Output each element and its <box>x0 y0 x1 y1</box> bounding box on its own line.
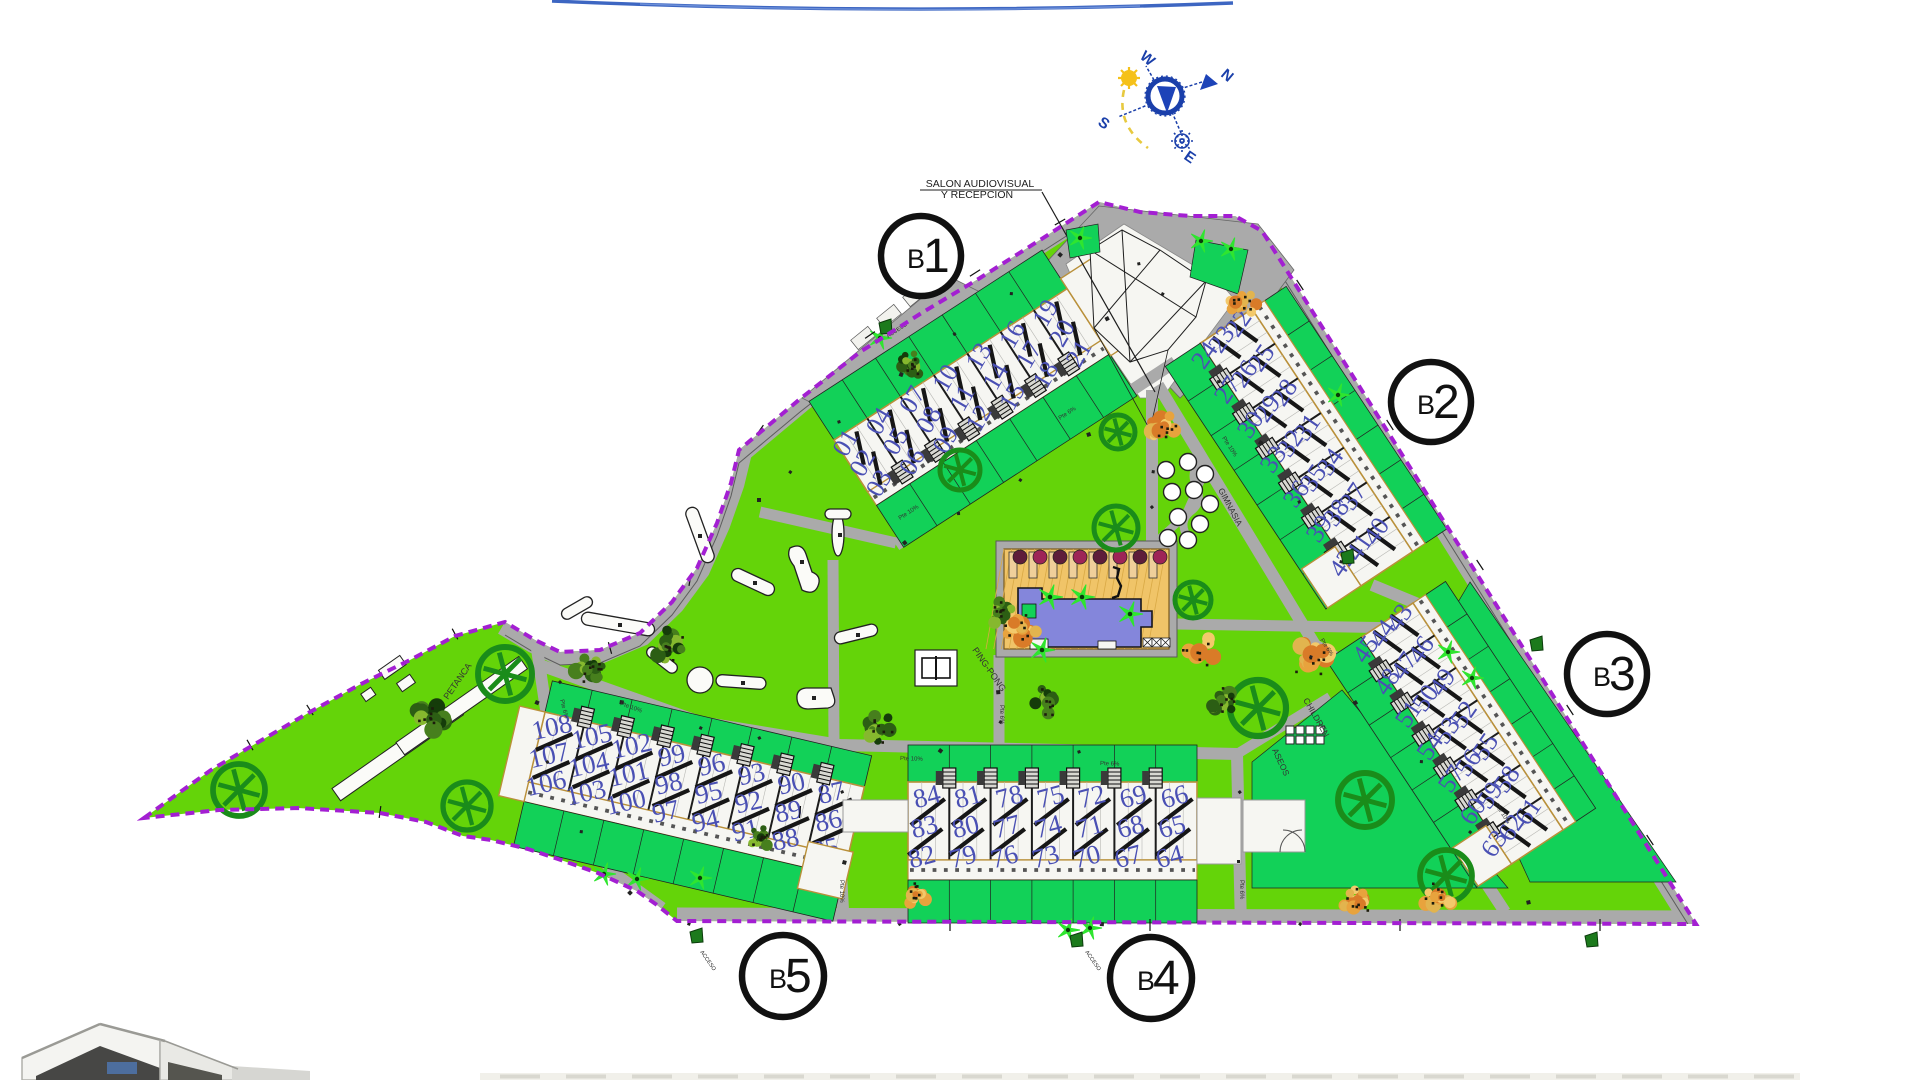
svg-text:Pte 6%: Pte 6% <box>1238 880 1244 900</box>
svg-text:W: W <box>1136 48 1158 71</box>
svg-text:S: S <box>1095 114 1113 134</box>
svg-text:Pte 10%: Pte 10% <box>900 756 924 763</box>
svg-text:Pte 6%: Pte 6% <box>1100 761 1120 768</box>
svg-text:5: 5 <box>785 950 812 1003</box>
svg-text:E: E <box>1181 148 1199 168</box>
svg-text:1: 1 <box>923 230 950 283</box>
svg-text:3: 3 <box>1609 648 1636 701</box>
svg-text:2: 2 <box>1433 376 1460 429</box>
svg-text:Pte 6%: Pte 6% <box>998 705 1004 725</box>
svg-text:Y RECEPCION: Y RECEPCION <box>941 189 1013 201</box>
svg-text:4: 4 <box>1153 952 1180 1005</box>
svg-text:ACCESO: ACCESO <box>1083 950 1102 973</box>
svg-text:ACCESO: ACCESO <box>698 950 717 973</box>
svg-text:Pte 10%: Pte 10% <box>838 880 844 903</box>
svg-text:N: N <box>1217 66 1236 86</box>
